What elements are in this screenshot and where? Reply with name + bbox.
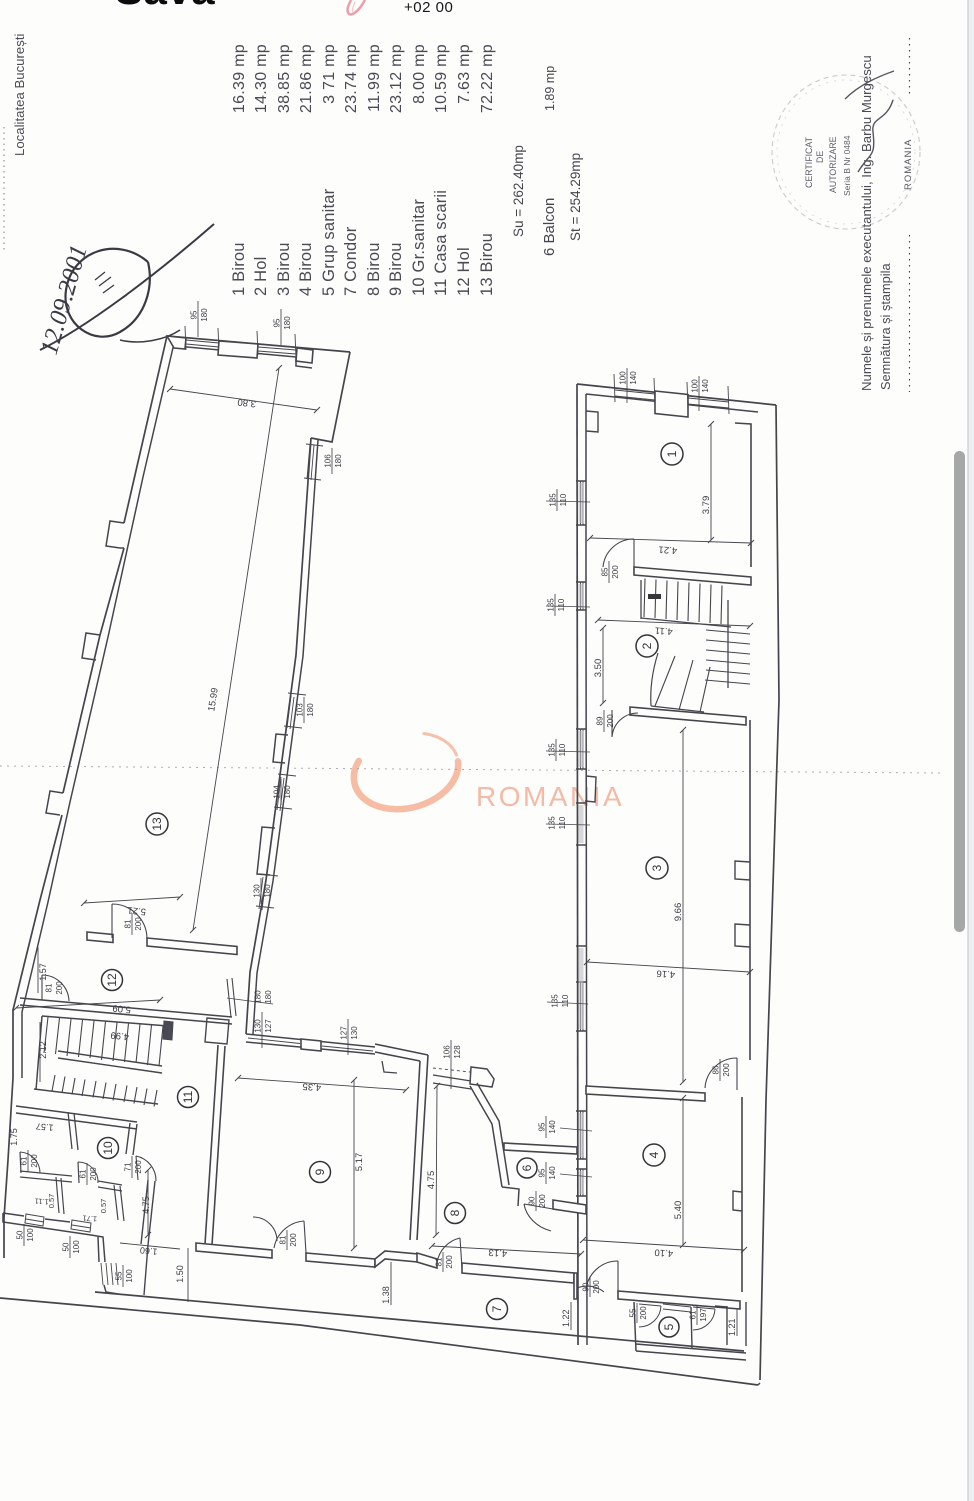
svg-text:11 Casa scarii: 11 Casa scarii <box>432 190 450 296</box>
svg-text:3.80: 3.80 <box>237 396 257 409</box>
svg-text:81: 81 <box>124 919 133 928</box>
svg-text:180: 180 <box>283 785 292 799</box>
svg-text:127: 127 <box>340 1026 349 1040</box>
svg-text:2: 2 <box>640 642 654 649</box>
svg-text:135: 135 <box>548 743 557 757</box>
svg-text:1.22: 1.22 <box>561 1309 571 1327</box>
svg-text:10.59 mp: 10.59 mp <box>433 44 450 113</box>
svg-text:+02 00: +02 00 <box>404 0 453 16</box>
svg-text:200: 200 <box>89 1167 98 1181</box>
svg-text:127: 127 <box>264 1019 273 1033</box>
svg-text:1 Birou: 1 Birou <box>230 242 248 296</box>
svg-text:200: 200 <box>606 714 615 728</box>
svg-text:1.50: 1.50 <box>175 1265 185 1283</box>
svg-text:1.38: 1.38 <box>381 1286 391 1304</box>
svg-text:3.79: 3.79 <box>701 496 712 515</box>
svg-text:200: 200 <box>611 565 620 579</box>
svg-text:110: 110 <box>559 493 568 506</box>
svg-text:135: 135 <box>549 493 558 507</box>
svg-text:13 Birou: 13 Birou <box>478 233 496 296</box>
svg-text:7: 7 <box>490 1305 504 1312</box>
svg-text:3.50: 3.50 <box>593 659 604 678</box>
svg-text:90: 90 <box>582 1282 591 1291</box>
svg-text:5.40: 5.40 <box>673 1201 684 1220</box>
svg-text:1.89 mp: 1.89 mp <box>543 66 557 111</box>
svg-text:130: 130 <box>350 1026 359 1040</box>
svg-text:103: 103 <box>296 703 305 717</box>
svg-text:180: 180 <box>283 316 292 330</box>
svg-text:5: 5 <box>662 1323 676 1330</box>
svg-text:61: 61 <box>20 1156 29 1165</box>
svg-text:180: 180 <box>264 990 273 1004</box>
svg-text:61: 61 <box>689 1310 698 1319</box>
svg-text:St = 254.29mp: St = 254.29mp <box>568 153 583 241</box>
svg-text:95: 95 <box>538 1122 547 1131</box>
svg-text:1.57: 1.57 <box>38 963 48 981</box>
svg-text:180: 180 <box>254 990 263 1004</box>
svg-text:200: 200 <box>134 917 143 931</box>
svg-text:1.71: 1.71 <box>82 1213 97 1223</box>
svg-text:6: 6 <box>520 1164 534 1171</box>
svg-text:21.86 mp: 21.86 mp <box>298 44 315 113</box>
svg-text:130: 130 <box>254 1019 263 1033</box>
svg-text:4.75: 4.75 <box>426 1171 437 1190</box>
svg-text:2.12: 2.12 <box>38 1041 48 1059</box>
svg-text:200: 200 <box>538 1194 547 1208</box>
svg-text:85: 85 <box>601 567 610 576</box>
svg-text:140: 140 <box>548 1166 557 1180</box>
svg-text:11: 11 <box>181 1090 195 1103</box>
svg-text:CERTIFICAT: CERTIFICAT <box>804 136 814 188</box>
svg-text:55: 55 <box>115 1271 124 1280</box>
svg-text:71: 71 <box>124 1162 133 1171</box>
svg-text:110: 110 <box>561 994 570 1007</box>
svg-text:55: 55 <box>629 1308 638 1317</box>
svg-text:50: 50 <box>62 1242 71 1251</box>
svg-text:180: 180 <box>334 454 343 468</box>
svg-text:5.21: 5.21 <box>127 904 147 917</box>
svg-text:180: 180 <box>306 703 315 717</box>
svg-text:100: 100 <box>72 1240 81 1254</box>
svg-text:Numele și prenumele executantu: Numele și prenumele executantului, Ing. … <box>859 55 874 391</box>
svg-text:1.75: 1.75 <box>9 1128 19 1146</box>
svg-text:16.39 mp: 16.39 mp <box>231 44 248 113</box>
svg-text:135: 135 <box>551 994 560 1008</box>
svg-text:140: 140 <box>548 1120 557 1134</box>
svg-text:Seria B Nr 0484: Seria B Nr 0484 <box>842 135 852 196</box>
svg-text:9.66: 9.66 <box>673 903 684 922</box>
svg-text:140: 140 <box>701 379 710 393</box>
svg-text:DE: DE <box>815 151 825 163</box>
svg-text:5.09: 5.09 <box>112 1002 132 1015</box>
svg-text:1.57: 1.57 <box>35 1121 53 1133</box>
svg-text:100: 100 <box>125 1269 134 1283</box>
svg-text:104: 104 <box>273 785 282 799</box>
svg-text:11.99 mp: 11.99 mp <box>366 44 383 112</box>
svg-text:200: 200 <box>289 1233 298 1247</box>
svg-text:AUTORIZARE: AUTORIZARE <box>828 136 838 193</box>
svg-text:23.74 mp: 23.74 mp <box>343 44 360 113</box>
svg-text:13: 13 <box>150 817 164 831</box>
svg-text:81: 81 <box>435 1257 444 1266</box>
svg-text:4: 4 <box>647 1151 661 1158</box>
svg-text:61: 61 <box>79 1169 88 1178</box>
svg-text:200: 200 <box>639 1306 648 1320</box>
svg-text:100: 100 <box>619 371 628 385</box>
svg-text:180: 180 <box>200 308 209 322</box>
svg-text:50: 50 <box>16 1230 25 1239</box>
svg-text:180: 180 <box>263 884 272 898</box>
svg-text:3 71 mp: 3 71 mp <box>321 44 338 104</box>
svg-text:200: 200 <box>55 981 64 995</box>
svg-text:1.60: 1.60 <box>139 1245 157 1257</box>
svg-text:95: 95 <box>273 318 282 327</box>
svg-text:8 Birou: 8 Birou <box>365 242 383 296</box>
svg-text:Localitatea București: Localitatea București <box>12 34 27 156</box>
svg-text:100: 100 <box>691 379 700 393</box>
svg-text:200: 200 <box>134 1160 143 1174</box>
svg-text:4.16: 4.16 <box>656 967 675 979</box>
svg-text:8: 8 <box>448 1209 462 1216</box>
svg-text:81: 81 <box>279 1235 288 1244</box>
svg-text:200: 200 <box>722 1063 731 1077</box>
svg-text:1.21: 1.21 <box>727 1318 737 1336</box>
svg-text:4.13: 4.13 <box>488 1246 507 1258</box>
svg-text:14.30 mp: 14.30 mp <box>253 44 270 113</box>
svg-text:4.21: 4.21 <box>658 543 677 555</box>
svg-text:81: 81 <box>45 983 54 992</box>
svg-text:4.99: 4.99 <box>110 1029 130 1042</box>
svg-text:6 Balcon: 6 Balcon <box>541 198 558 256</box>
svg-text:4.10: 4.10 <box>654 1246 673 1258</box>
svg-text:86: 86 <box>712 1065 721 1074</box>
svg-text:10: 10 <box>101 1141 115 1155</box>
svg-text:200: 200 <box>592 1280 601 1294</box>
svg-text:1: 1 <box>665 450 679 457</box>
svg-text:7 Condor: 7 Condor <box>342 226 360 296</box>
svg-text:8.00 mp: 8.00 mp <box>411 44 428 104</box>
svg-text:2 Hol: 2 Hol <box>252 256 270 296</box>
svg-text:200: 200 <box>30 1154 39 1168</box>
svg-text:89: 89 <box>596 716 605 725</box>
svg-text:110: 110 <box>558 743 567 756</box>
svg-text:5 Grup sanitar: 5 Grup sanitar <box>320 188 338 296</box>
svg-text:106: 106 <box>443 1045 452 1059</box>
svg-text:106: 106 <box>324 454 333 468</box>
svg-text:38.85 mp: 38.85 mp <box>276 44 293 113</box>
svg-text:ROMANIA: ROMANIA <box>903 139 914 190</box>
svg-text:3 Birou: 3 Birou <box>275 242 293 296</box>
svg-text:10 Gr.sanitar: 10 Gr.sanitar <box>410 199 428 296</box>
svg-text:128: 128 <box>453 1045 462 1059</box>
svg-text:95: 95 <box>538 1168 547 1177</box>
svg-text:200: 200 <box>445 1255 454 1269</box>
svg-text:4.35: 4.35 <box>302 1080 321 1092</box>
svg-text:110: 110 <box>557 598 566 611</box>
svg-text:197: 197 <box>699 1308 708 1322</box>
svg-text:5.17: 5.17 <box>354 1153 365 1172</box>
svg-text:4.11: 4.11 <box>655 624 674 636</box>
svg-text:100: 100 <box>26 1228 35 1242</box>
svg-text:9: 9 <box>313 1168 327 1175</box>
svg-text:135: 135 <box>547 598 556 612</box>
svg-text:23.12 mp: 23.12 mp <box>388 44 405 113</box>
svg-text:135: 135 <box>548 816 557 830</box>
svg-text:110: 110 <box>558 816 567 829</box>
svg-text:90: 90 <box>528 1196 537 1205</box>
svg-text:95: 95 <box>190 310 199 319</box>
svg-text:ROMANIA: ROMANIA <box>476 781 624 812</box>
svg-text:12: 12 <box>105 973 119 987</box>
svg-text:12 Hol: 12 Hol <box>455 247 473 296</box>
svg-text:3: 3 <box>650 864 664 871</box>
svg-text:7.63 mp: 7.63 mp <box>456 44 473 104</box>
svg-text:Su = 262.40mp: Su = 262.40mp <box>511 145 526 237</box>
svg-text:72.22 mp: 72.22 mp <box>479 44 496 113</box>
svg-text:Sava: Sava <box>115 0 215 13</box>
svg-text:9 Birou: 9 Birou <box>387 242 405 296</box>
svg-text:4.75: 4.75 <box>141 1196 151 1214</box>
svg-text:140: 140 <box>629 371 638 385</box>
svg-text:Semnătura și ștampila: Semnătura și ștampila <box>878 263 893 390</box>
svg-text:4 Birou: 4 Birou <box>297 242 315 296</box>
svg-text:0.57: 0.57 <box>99 1199 108 1214</box>
svg-text:0.57: 0.57 <box>47 1194 56 1209</box>
svg-text:130: 130 <box>253 884 262 898</box>
